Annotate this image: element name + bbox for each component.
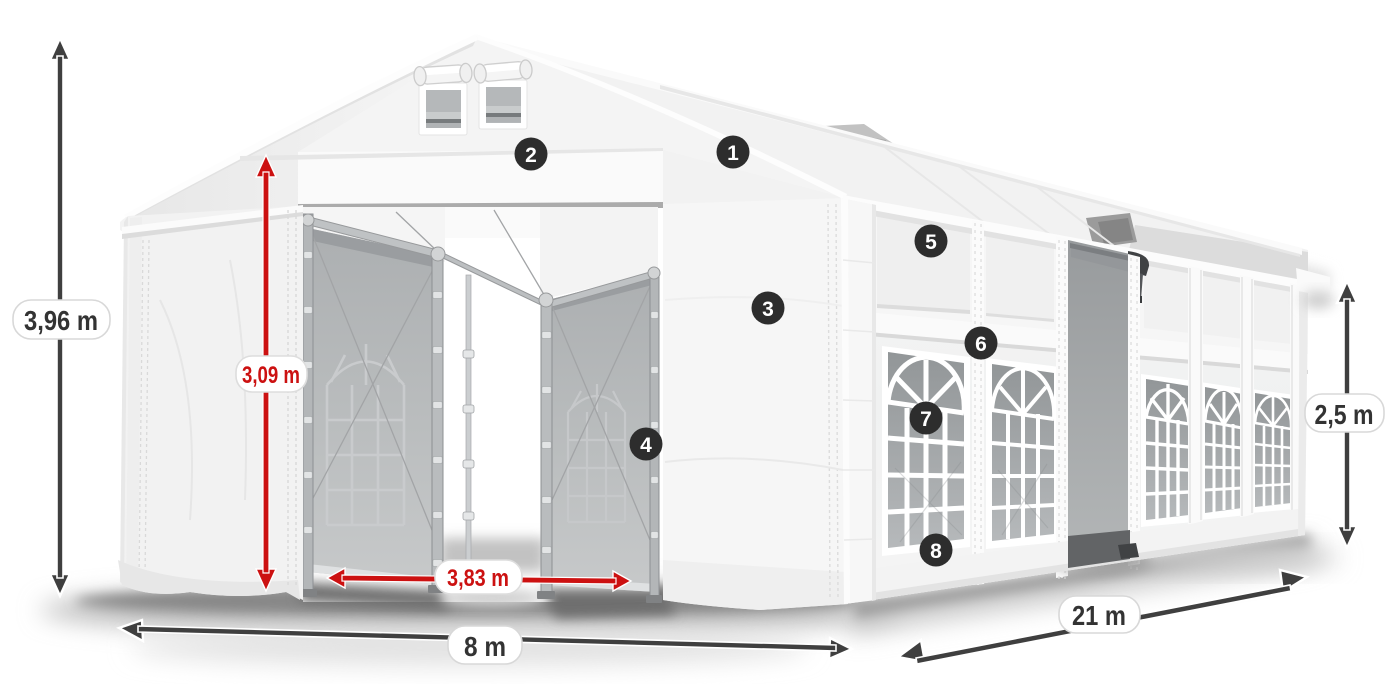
svg-text:3: 3 (762, 298, 774, 321)
svg-text:2: 2 (525, 144, 537, 167)
svg-text:6: 6 (975, 333, 987, 356)
svg-text:8 m: 8 m (464, 631, 506, 662)
svg-text:8: 8 (930, 540, 942, 563)
svg-text:2,5 m: 2,5 m (1315, 399, 1374, 430)
svg-text:1: 1 (727, 142, 739, 165)
svg-text:7: 7 (920, 408, 932, 431)
svg-text:4: 4 (640, 434, 652, 457)
svg-text:5: 5 (925, 231, 937, 254)
svg-text:3,09 m: 3,09 m (242, 362, 300, 389)
svg-text:3,96 m: 3,96 m (24, 305, 98, 336)
svg-text:21 m: 21 m (1072, 600, 1126, 631)
svg-text:3,83 m: 3,83 m (447, 565, 509, 592)
